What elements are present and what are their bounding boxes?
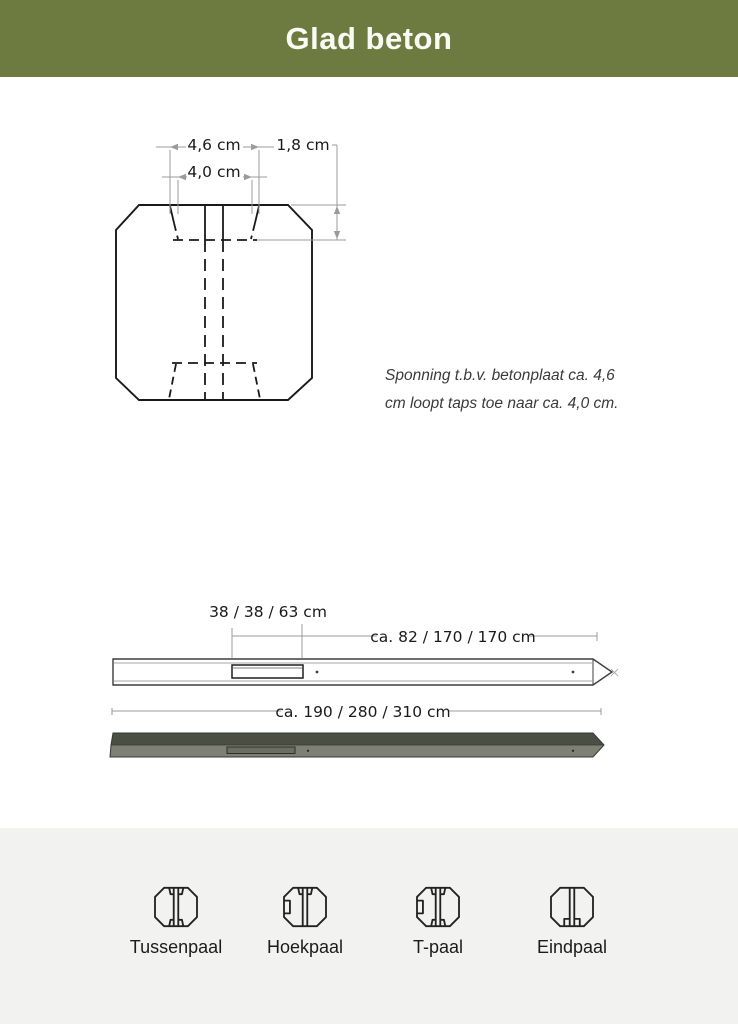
eindpaal-icon [549,886,595,928]
cross-section-drawing: 4,6 cm 4,0 cm 1,8 cm [116,136,346,400]
post-type-item-tussenpaal[interactable]: Tussenpaal [111,886,241,958]
dimension-label-groove-length: 38 / 38 / 63 cm [209,603,327,621]
post-type-label: T-paal [413,937,463,958]
note-text: Sponning t.b.v. betonplaat ca. 4,6 cm lo… [385,362,627,418]
post3d-groove [227,747,295,754]
tussenpaal-icon [153,886,199,928]
post-type-item-t-paal[interactable]: T-paal [373,886,503,958]
post-type-label: Hoekpaal [267,937,343,958]
post-type-label: Tussenpaal [130,937,222,958]
post-mark-dot-right [572,671,575,674]
post3d-dot-right [572,750,574,752]
page: Glad beton 4,6 cm [0,0,738,1024]
post3d-top-face [111,733,604,745]
post3d-bottom-face [110,745,604,757]
t-paal-icon [415,886,461,928]
dimension-label-total-length: ca. 190 / 280 / 310 cm [275,703,450,721]
post-type-label: Eindpaal [537,937,607,958]
dimension-label-top-length: ca. 82 / 170 / 170 cm [370,628,535,646]
post-type-item-hoekpaal[interactable]: Hoekpaal [240,886,370,958]
post-groove [232,665,303,678]
dimension-label-40: 4,0 cm [187,163,240,181]
post3d-dot-left [307,750,309,752]
hoekpaal-icon [282,886,328,928]
post-3d-view: ca. 190 / 280 / 310 cm [110,703,604,757]
dimension-label-18: 1,8 cm [276,136,329,154]
dimension-label-46: 4,6 cm [187,136,240,154]
post-type-item-eindpaal[interactable]: Eindpaal [507,886,637,958]
post-mark-dot-left [316,671,319,674]
cross-section-outline [116,205,312,400]
post-side-view: 38 / 38 / 63 cm ca. 82 / 170 / 170 cm [113,603,618,685]
